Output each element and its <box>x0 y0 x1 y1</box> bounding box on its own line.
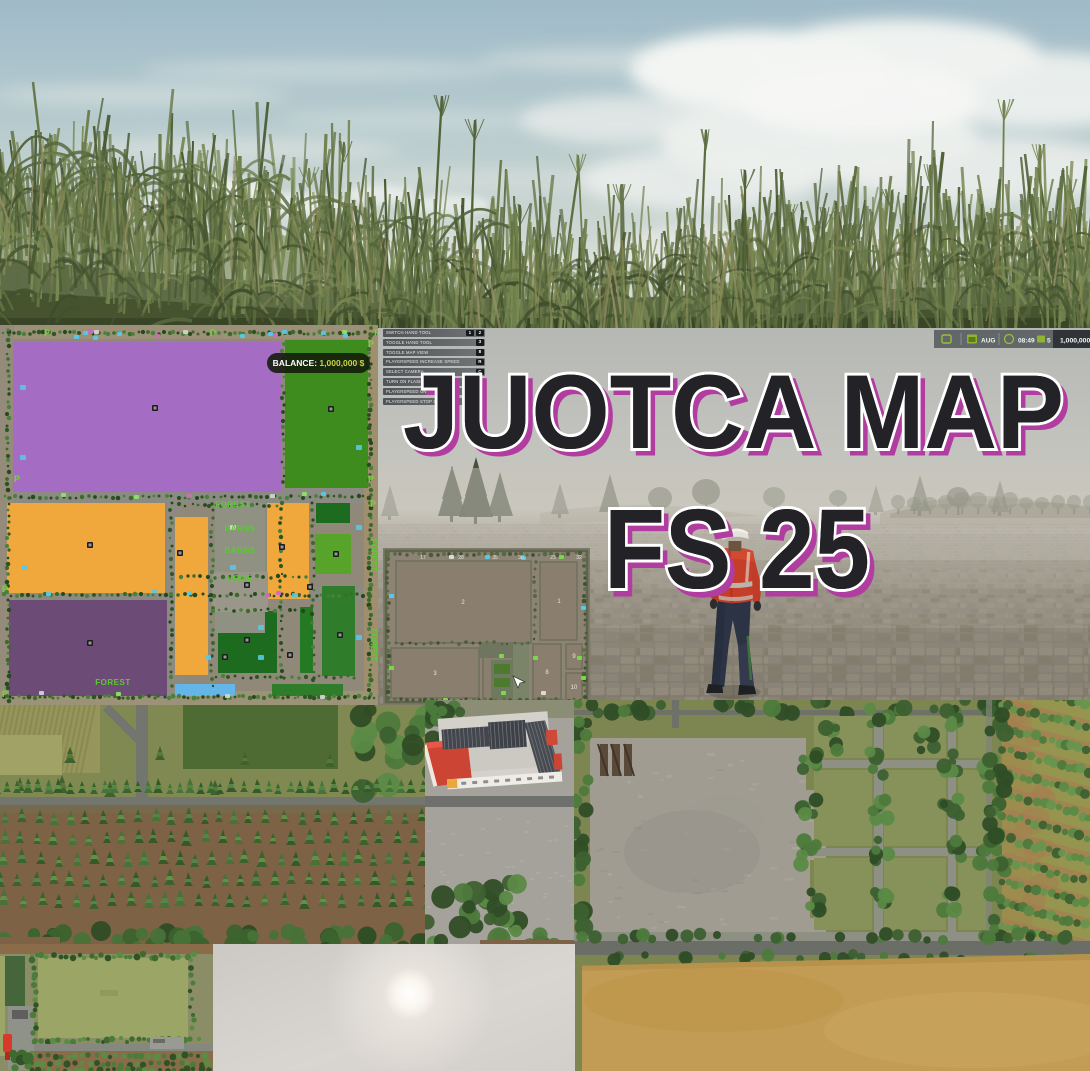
svg-text:5: 5 <box>1047 338 1051 345</box>
svg-text:AUG: AUG <box>981 338 995 345</box>
svg-text:P: P <box>374 328 378 338</box>
svg-text:FS 25: FS 25 <box>604 495 870 605</box>
svg-text:P: P <box>14 474 20 484</box>
svg-text:HOME: HOME <box>227 574 253 583</box>
svg-text:17: 17 <box>420 555 426 561</box>
svg-text:FOREST: FOREST <box>215 500 250 509</box>
svg-text:P: P <box>2 584 8 594</box>
svg-text:FOREST: FOREST <box>369 539 378 572</box>
svg-text:08:49: 08:49 <box>1018 338 1035 345</box>
svg-text:FOREST: FOREST <box>369 629 378 662</box>
svg-text:10: 10 <box>571 685 578 691</box>
svg-text:BARNS: BARNS <box>225 524 256 533</box>
svg-text:32: 32 <box>576 555 582 561</box>
svg-text:P: P <box>2 689 8 699</box>
svg-text:P: P <box>44 328 50 338</box>
svg-text:FOREST: FOREST <box>95 678 130 687</box>
svg-text:28: 28 <box>458 555 464 561</box>
svg-text:1,000,000: 1,000,000 <box>1060 338 1090 345</box>
svg-text:36: 36 <box>518 555 524 561</box>
svg-text:P: P <box>368 474 374 484</box>
svg-text:P: P <box>210 328 216 338</box>
svg-text:P: P <box>368 339 374 349</box>
svg-text:23: 23 <box>550 555 556 561</box>
svg-text:JUOTCA MAP: JUOTCA MAP <box>403 355 1064 465</box>
svg-text:35: 35 <box>492 555 498 561</box>
svg-text:BARNS: BARNS <box>225 546 256 555</box>
svg-text:P: P <box>370 499 376 509</box>
